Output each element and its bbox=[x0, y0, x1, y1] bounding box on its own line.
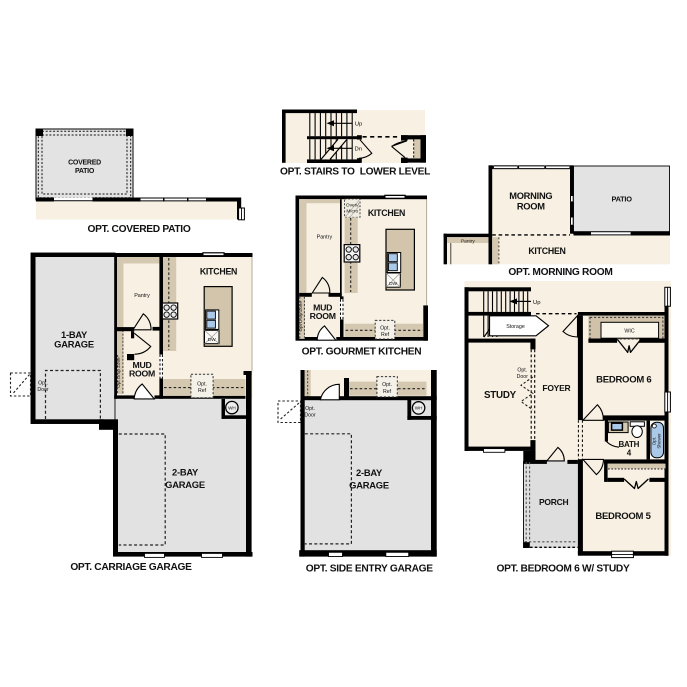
svg-text:MORNING: MORNING bbox=[509, 191, 552, 201]
svg-text:Pantry: Pantry bbox=[461, 238, 475, 244]
svg-text:2-BAY: 2-BAY bbox=[356, 467, 383, 478]
svg-text:Opt.: Opt. bbox=[197, 381, 207, 387]
svg-text:Up: Up bbox=[355, 122, 363, 128]
svg-text:ROOM: ROOM bbox=[129, 369, 155, 379]
svg-text:Pantry: Pantry bbox=[134, 293, 150, 299]
svg-text:WH: WH bbox=[228, 405, 236, 410]
svg-text:OPT. MORNING ROOM: OPT. MORNING ROOM bbox=[508, 267, 612, 278]
svg-text:Ref: Ref bbox=[383, 389, 392, 395]
svg-text:OPT. CARRIAGE GARAGE: OPT. CARRIAGE GARAGE bbox=[70, 562, 192, 573]
svg-text:GARAGE: GARAGE bbox=[165, 479, 205, 490]
svg-text:Opt.: Opt. bbox=[382, 382, 392, 388]
svg-text:Opt Drop Zone: Opt Drop Zone bbox=[116, 357, 121, 388]
svg-text:ROOM: ROOM bbox=[310, 311, 336, 321]
svg-text:STUDY: STUDY bbox=[484, 390, 517, 401]
svg-text:OPT. GOURMET KITCHEN: OPT. GOURMET KITCHEN bbox=[302, 346, 422, 357]
svg-text:2-BAY: 2-BAY bbox=[172, 467, 199, 478]
svg-text:Opt.: Opt. bbox=[517, 368, 527, 374]
svg-text:Opt.: Opt. bbox=[38, 380, 48, 386]
svg-text:ROOM: ROOM bbox=[517, 201, 545, 211]
svg-text:Opt.: Opt. bbox=[380, 325, 390, 331]
svg-text:KITCHEN: KITCHEN bbox=[368, 208, 405, 218]
svg-text:Opt.: Opt. bbox=[305, 406, 315, 412]
svg-text:Up: Up bbox=[533, 300, 541, 306]
svg-text:PORCH: PORCH bbox=[539, 497, 569, 507]
svg-text:DW: DW bbox=[208, 337, 216, 343]
svg-text:Door: Door bbox=[517, 374, 529, 380]
svg-text:OPT. COVERED PATIO: OPT. COVERED PATIO bbox=[88, 224, 191, 235]
svg-text:Door: Door bbox=[304, 412, 316, 418]
svg-text:Dn: Dn bbox=[355, 147, 363, 153]
svg-text:OPT. SIDE ENTRY GARAGE: OPT. SIDE ENTRY GARAGE bbox=[306, 563, 433, 574]
svg-text:GARAGE: GARAGE bbox=[349, 479, 389, 490]
svg-text:Micro: Micro bbox=[346, 208, 358, 214]
svg-text:Door: Door bbox=[37, 387, 49, 393]
svg-text:FOYER: FOYER bbox=[542, 383, 570, 393]
svg-text:OPT. BEDROOM 6 W/ STUDY: OPT. BEDROOM 6 W/ STUDY bbox=[497, 563, 630, 574]
svg-text:GARAGE: GARAGE bbox=[54, 338, 94, 349]
svg-text:DW: DW bbox=[389, 281, 397, 287]
svg-text:Ref: Ref bbox=[198, 388, 207, 394]
svg-text:PATIO: PATIO bbox=[611, 194, 632, 203]
svg-text:KITCHEN: KITCHEN bbox=[528, 246, 565, 256]
svg-text:Shower: Shower bbox=[657, 433, 662, 449]
svg-text:Oven/: Oven/ bbox=[346, 202, 359, 208]
svg-text:WH: WH bbox=[415, 406, 423, 411]
svg-text:Opt Drop Zone: Opt Drop Zone bbox=[298, 301, 303, 332]
svg-text:Ref: Ref bbox=[381, 332, 390, 338]
svg-text:OPT. STAIRS TO LOWER LEVEL: OPT. STAIRS TO LOWER LEVEL bbox=[280, 167, 430, 178]
svg-text:COVERED: COVERED bbox=[68, 159, 101, 166]
svg-text:Pantry: Pantry bbox=[317, 235, 333, 241]
svg-text:Storage: Storage bbox=[506, 324, 525, 330]
svg-text:PATIO: PATIO bbox=[75, 168, 95, 175]
svg-text:WIC: WIC bbox=[624, 329, 634, 335]
svg-text:BEDROOM 6: BEDROOM 6 bbox=[596, 374, 651, 385]
svg-text:KITCHEN: KITCHEN bbox=[200, 267, 237, 277]
svg-text:BEDROOM 5: BEDROOM 5 bbox=[595, 511, 651, 522]
